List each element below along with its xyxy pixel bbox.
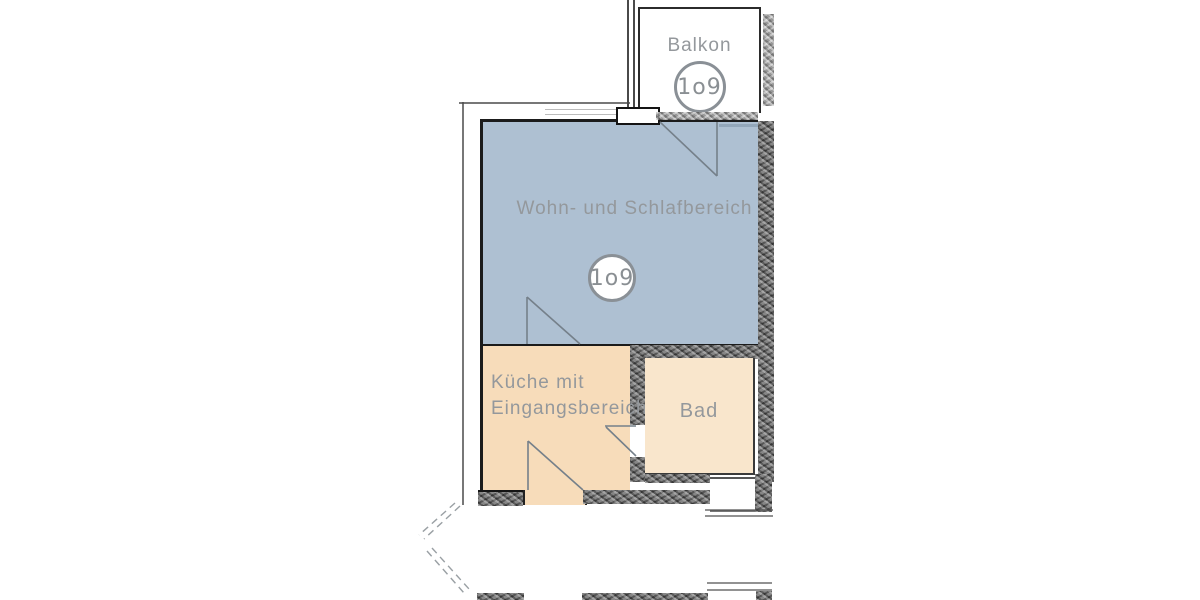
outer-wall-left-line	[462, 102, 464, 505]
bottom-wall-right	[583, 490, 711, 504]
balcony-parapet-hatch	[763, 14, 774, 106]
exterior-wall-right	[758, 121, 774, 482]
wall-kitchen-bath-lower	[630, 457, 645, 482]
cutoff-dashed-line-1b	[419, 503, 455, 535]
wall-corner-bottom-right	[755, 474, 772, 512]
corridor-step-line-1	[707, 582, 772, 584]
wall-living-bath	[630, 345, 758, 359]
cutoff-dashed-line-2a	[427, 551, 464, 593]
balcony-room: Balkon 1o9	[638, 7, 761, 113]
corridor-wall-chunk	[756, 591, 772, 600]
cutoff-dashed-line-2b	[432, 548, 469, 589]
kitchen-label-line1: Küche mit	[491, 372, 584, 394]
kitchen-room: Küche mit Eingangsbereich	[480, 346, 630, 492]
living-room: Wohn- und Schlafbereich 1o9	[480, 119, 758, 347]
living-unit-badge: 1o9	[588, 254, 636, 302]
living-label: Wohn- und Schlafbereich	[517, 198, 753, 220]
corridor-niche	[710, 477, 755, 512]
bath-room: Bad	[645, 358, 755, 475]
corridor-edge-line-1	[705, 509, 773, 511]
balcony-outer-wall-line	[627, 0, 629, 113]
corridor-edge-line-2	[705, 515, 773, 517]
slab-edge-line	[719, 124, 758, 127]
cutoff-dashed-line-1a	[424, 506, 460, 539]
balcony-label: Balkon	[667, 35, 731, 57]
bath-label: Bad	[680, 400, 719, 423]
corridor-bottom-wall-right	[582, 593, 708, 600]
outer-wall-top-line	[459, 102, 630, 104]
wall-below-bath	[645, 474, 710, 483]
corridor-bottom-wall-left	[477, 593, 524, 600]
bottom-wall-left	[478, 490, 523, 506]
balcony-inner-wall-line	[633, 0, 635, 113]
floor-plan-canvas: Balkon 1o9 Wohn- und Schlafbereich 1o9 K…	[0, 0, 1200, 600]
balcony-unit-badge: 1o9	[674, 61, 726, 113]
balcony-door-threshold	[616, 107, 660, 125]
kitchen-label-line2: Eingangsbereich	[491, 398, 648, 420]
entry-door-opening	[523, 490, 587, 505]
top-wall-right-band	[656, 112, 758, 120]
